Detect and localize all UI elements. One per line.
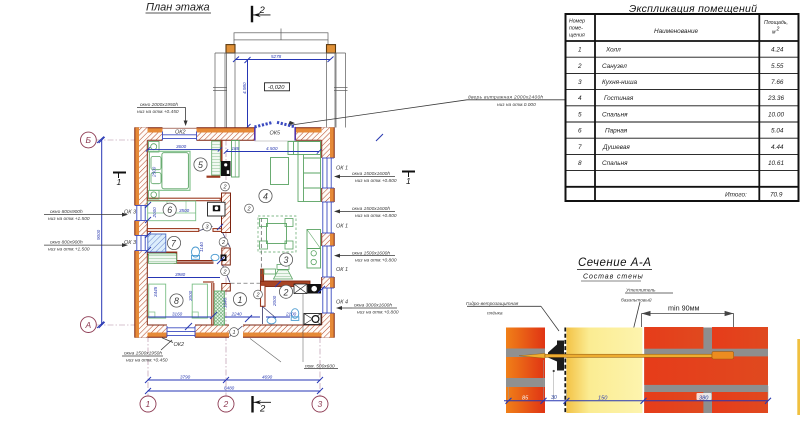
svg-text:7.66: 7.66 <box>771 79 784 86</box>
svg-text:низ на отм.+0.800: низ на отм.+0.800 <box>355 178 397 184</box>
svg-text:2: 2 <box>223 269 227 275</box>
svg-text:2: 2 <box>259 5 266 16</box>
svg-text:3445: 3445 <box>153 286 158 297</box>
svg-text:2100: 2100 <box>285 312 297 317</box>
svg-text:Итого:: Итого: <box>725 192 747 199</box>
svg-text:8: 8 <box>174 296 179 306</box>
svg-text:Душевая: Душевая <box>602 144 630 151</box>
svg-text:3: 3 <box>318 399 323 409</box>
svg-text:70.9: 70.9 <box>770 192 783 199</box>
svg-text:Спальня: Спальня <box>602 111 628 118</box>
svg-text:ОК 1: ОК 1 <box>336 166 348 172</box>
svg-text:ОК2: ОК2 <box>175 130 186 136</box>
svg-text:30: 30 <box>551 395 557 401</box>
svg-text:2: 2 <box>776 27 780 33</box>
svg-text:1: 1 <box>146 399 151 409</box>
svg-text:2500: 2500 <box>152 166 157 178</box>
svg-text:1: 1 <box>578 47 582 54</box>
svg-text:4.980: 4.980 <box>242 82 247 94</box>
svg-text:4: 4 <box>263 192 268 202</box>
svg-text:Номер: Номер <box>569 19 585 25</box>
svg-text:4: 4 <box>578 95 582 102</box>
svg-text:ОК2: ОК2 <box>174 342 185 348</box>
svg-text:низ на отм.+0.800: низ на отм.+0.800 <box>355 258 397 264</box>
svg-text:ОК 1: ОК 1 <box>336 224 348 230</box>
svg-text:5: 5 <box>198 160 203 170</box>
svg-text:3160: 3160 <box>172 312 183 317</box>
svg-text:1140: 1140 <box>199 242 204 252</box>
svg-text:1: 1 <box>406 176 411 186</box>
svg-text:6: 6 <box>167 205 172 215</box>
svg-text:2000: 2000 <box>152 207 157 219</box>
svg-text:6: 6 <box>578 128 582 135</box>
svg-text:380: 380 <box>699 395 709 401</box>
svg-text:плёнка: плёнка <box>487 311 503 317</box>
svg-text:4.44: 4.44 <box>771 144 784 151</box>
svg-text:низ на отм.+0.450: низ на отм.+0.450 <box>126 358 168 364</box>
svg-text:1: 1 <box>117 177 122 187</box>
svg-text:3000: 3000 <box>188 290 193 301</box>
svg-text:8480: 8480 <box>224 386 235 391</box>
svg-text:3500: 3500 <box>179 208 190 213</box>
svg-text:ОК 4: ОК 4 <box>336 300 348 306</box>
svg-text:щения: щения <box>569 33 585 39</box>
svg-text:150: 150 <box>598 395 608 401</box>
svg-text:План этажа: План этажа <box>146 2 210 14</box>
svg-text:3: 3 <box>578 79 582 86</box>
svg-text:4690: 4690 <box>262 375 273 380</box>
svg-text:1640: 1640 <box>222 297 227 308</box>
svg-text:2: 2 <box>223 185 227 191</box>
svg-text:1: 1 <box>233 330 236 336</box>
svg-text:низ на отм.0.000: низ на отм.0.000 <box>497 102 536 108</box>
svg-text:ОК5: ОК5 <box>270 131 282 137</box>
svg-text:3790: 3790 <box>180 375 191 380</box>
svg-text:Парная: Парная <box>605 128 628 135</box>
svg-text:188: 188 <box>232 146 240 151</box>
svg-text:2: 2 <box>259 404 266 415</box>
svg-text:5: 5 <box>578 111 582 118</box>
svg-text:2240: 2240 <box>231 312 243 317</box>
svg-text:м: м <box>772 30 776 36</box>
svg-text:1: 1 <box>238 295 243 305</box>
svg-text:3: 3 <box>284 255 289 265</box>
svg-text:5278: 5278 <box>271 54 282 59</box>
svg-text:ОК 1: ОК 1 <box>336 267 348 273</box>
svg-text:9000: 9000 <box>96 229 101 240</box>
svg-text:2: 2 <box>223 399 229 409</box>
svg-text:Сечение А-А: Сечение А-А <box>578 257 651 269</box>
svg-text:ОК 3: ОК 3 <box>124 209 137 215</box>
svg-text:3600: 3600 <box>176 144 187 149</box>
svg-text:окно 800х900h: окно 800х900h <box>50 209 83 215</box>
svg-text:Гостиная: Гостиная <box>604 95 634 102</box>
svg-text:5.55: 5.55 <box>771 63 784 70</box>
svg-text:А: А <box>85 320 92 330</box>
svg-text:4.500: 4.500 <box>266 146 278 151</box>
svg-text:23.36: 23.36 <box>767 95 784 102</box>
svg-text:Спальня: Спальня <box>602 160 628 167</box>
svg-text:Кухня-ниша: Кухня-ниша <box>602 79 638 86</box>
svg-text:Санузел: Санузел <box>602 63 627 70</box>
svg-text:Б: Б <box>86 135 92 145</box>
svg-text:ОК 3: ОК 3 <box>124 240 137 246</box>
svg-text:-0,020: -0,020 <box>268 85 285 91</box>
svg-text:5.04: 5.04 <box>771 128 784 135</box>
svg-text:10.61: 10.61 <box>768 160 784 167</box>
svg-text:Площадь,: Площадь, <box>764 20 788 26</box>
svg-text:низ на отм.+0.450: низ на отм.+0.450 <box>137 109 179 115</box>
svg-text:2000: 2000 <box>272 295 277 307</box>
svg-text:окно 800х900h: окно 800х900h <box>50 240 83 246</box>
svg-text:поме-: поме- <box>569 26 583 32</box>
svg-text:7: 7 <box>578 144 582 151</box>
svg-text:низ на отм.+0.800: низ на отм.+0.800 <box>355 213 397 219</box>
svg-text:2: 2 <box>577 63 582 70</box>
svg-text:85: 85 <box>522 395 529 401</box>
svg-text:2: 2 <box>247 207 251 213</box>
svg-text:8: 8 <box>578 160 582 167</box>
svg-text:Состав стены: Состав стены <box>583 274 644 281</box>
svg-text:Холл: Холл <box>605 47 621 54</box>
svg-text:низ на отм.+0.800: низ на отм.+0.800 <box>357 310 399 316</box>
svg-text:10.00: 10.00 <box>768 111 784 118</box>
svg-text:min 90мм: min 90мм <box>668 304 700 313</box>
svg-text:2: 2 <box>283 287 289 297</box>
svg-text:низ на отм.+1.500: низ на отм.+1.500 <box>48 216 90 222</box>
svg-text:2: 2 <box>221 240 225 246</box>
svg-text:3980: 3980 <box>175 272 186 277</box>
svg-text:низ на отм.+1.500: низ на отм.+1.500 <box>48 247 90 253</box>
svg-text:2: 2 <box>256 293 260 299</box>
svg-text:базальтовый: базальтовый <box>621 297 652 304</box>
svg-text:Наименование: Наименование <box>654 28 699 35</box>
svg-text:4.24: 4.24 <box>771 47 784 54</box>
